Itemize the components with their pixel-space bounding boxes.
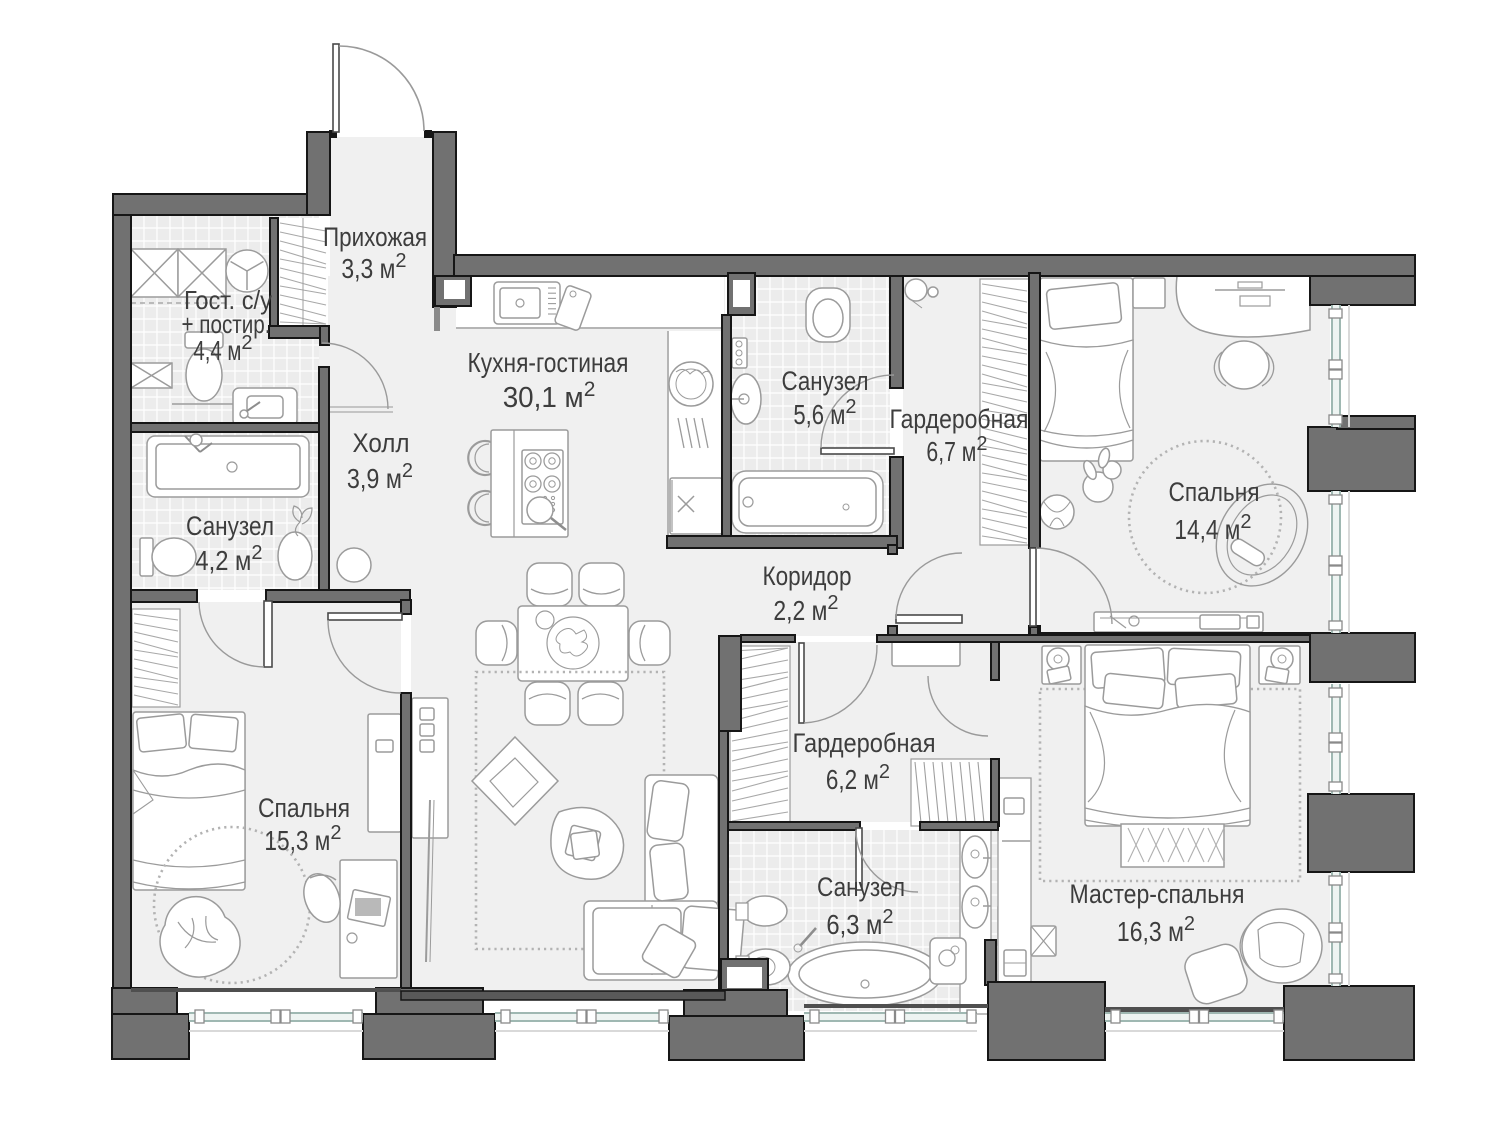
svg-text:14,4 м2: 14,4 м2 [1174, 511, 1251, 545]
svg-text:Кухня-гостиная: Кухня-гостиная [468, 347, 629, 378]
svg-text:Прихожая: Прихожая [323, 222, 427, 252]
svg-text:Мастер-спальня: Мастер-спальня [1070, 879, 1245, 909]
svg-text:Коридор: Коридор [763, 561, 852, 591]
svg-text:Холл: Холл [353, 428, 410, 458]
svg-text:30,1 м2: 30,1 м2 [503, 378, 596, 414]
svg-text:Гардеробная: Гардеробная [890, 404, 1029, 434]
svg-text:Санузел: Санузел [186, 511, 274, 541]
svg-text:15,3 м2: 15,3 м2 [264, 822, 341, 856]
svg-text:16,3 м2: 16,3 м2 [1117, 913, 1195, 947]
svg-text:Спальня: Спальня [258, 793, 350, 823]
svg-text:Гардеробная: Гардеробная [793, 728, 936, 758]
svg-text:Санузел: Санузел [817, 872, 905, 902]
svg-text:Санузел: Санузел [782, 366, 869, 396]
svg-text:Спальня: Спальня [1169, 477, 1260, 507]
